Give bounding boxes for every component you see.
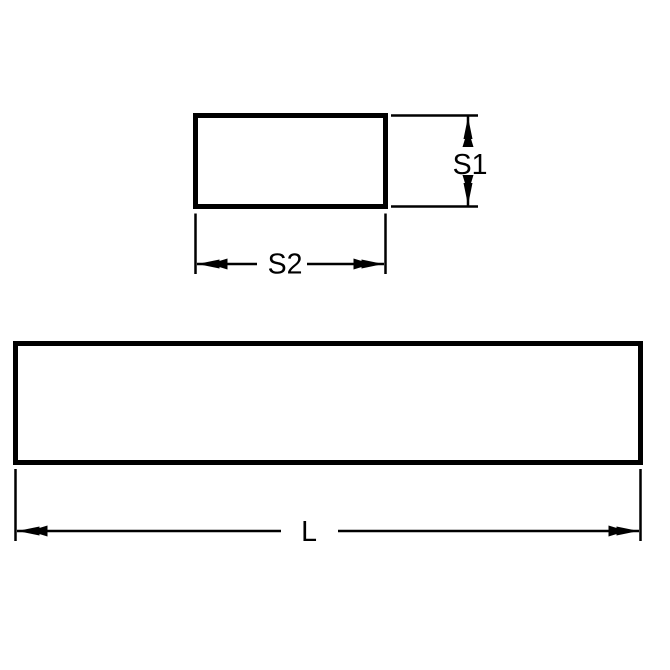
keystock-technical-drawing: S1 S2 L <box>0 0 670 670</box>
l-dimension-label: L <box>301 516 317 548</box>
s1-dimension-label: S1 <box>453 149 488 181</box>
drawing-canvas: S1 S2 L <box>0 0 670 670</box>
s2-dimension-label: S2 <box>268 249 303 281</box>
canvas-background <box>0 0 670 670</box>
